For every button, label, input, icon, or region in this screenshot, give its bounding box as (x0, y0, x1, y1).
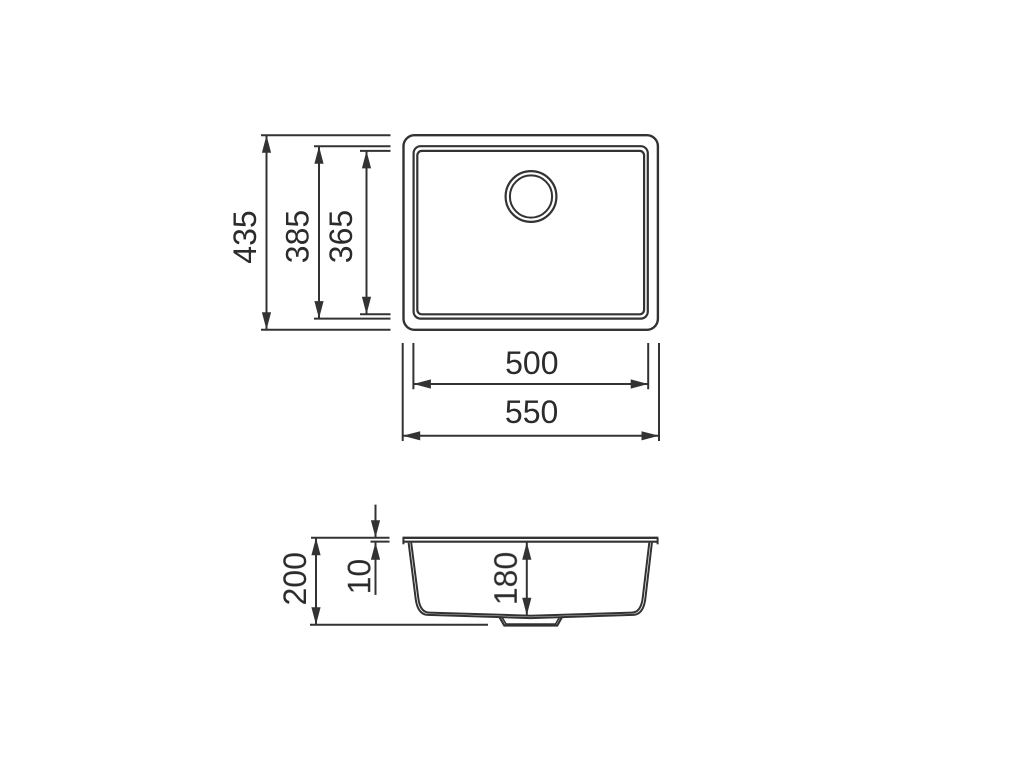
svg-text:435: 435 (227, 210, 263, 263)
svg-text:200: 200 (277, 552, 313, 605)
svg-text:180: 180 (488, 552, 524, 605)
svg-text:500: 500 (505, 345, 558, 381)
svg-text:10: 10 (341, 559, 377, 595)
svg-text:550: 550 (505, 394, 558, 430)
svg-text:365: 365 (323, 210, 359, 263)
svg-text:385: 385 (280, 210, 316, 263)
